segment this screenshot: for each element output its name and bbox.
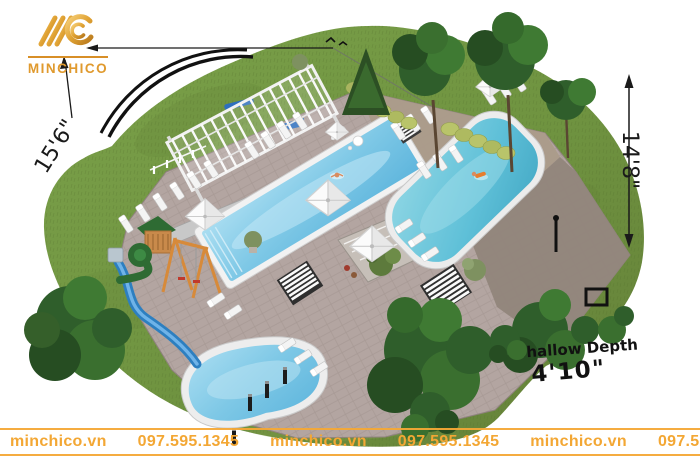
- depth-annotation: Shallow Depth 4'10": [515, 335, 638, 387]
- right-dimension-label: 14'8": [617, 131, 642, 189]
- watermark-site: minchico.vn: [10, 433, 107, 451]
- brand-name: MINCHICO: [28, 56, 108, 76]
- render-canvas: Shallow Depth 4'10" 15'6" 14'8": [0, 0, 700, 467]
- bollard-light: [265, 381, 269, 398]
- main-pool-swimmer: [330, 173, 344, 180]
- watermark-site: minchico.vn: [270, 433, 367, 451]
- bollard-light: [283, 367, 287, 384]
- watermark-phone: 097.595.1345: [138, 433, 239, 451]
- watermark-site: minchico.vn: [530, 433, 627, 451]
- watermark-bar: minchico.vn 097.595.1345 minchico.vn 097…: [0, 428, 700, 456]
- watermark-phone: 097.595.1345: [398, 433, 499, 451]
- brand-monogram-icon: [33, 6, 103, 50]
- watermark-phone: 097.595.1345: [658, 433, 700, 451]
- bollard-light: [248, 394, 252, 411]
- arrowhead-up-icon: [625, 74, 634, 88]
- depth-value: 4'10": [530, 356, 607, 388]
- brand-logo: MINCHICO: [20, 6, 116, 78]
